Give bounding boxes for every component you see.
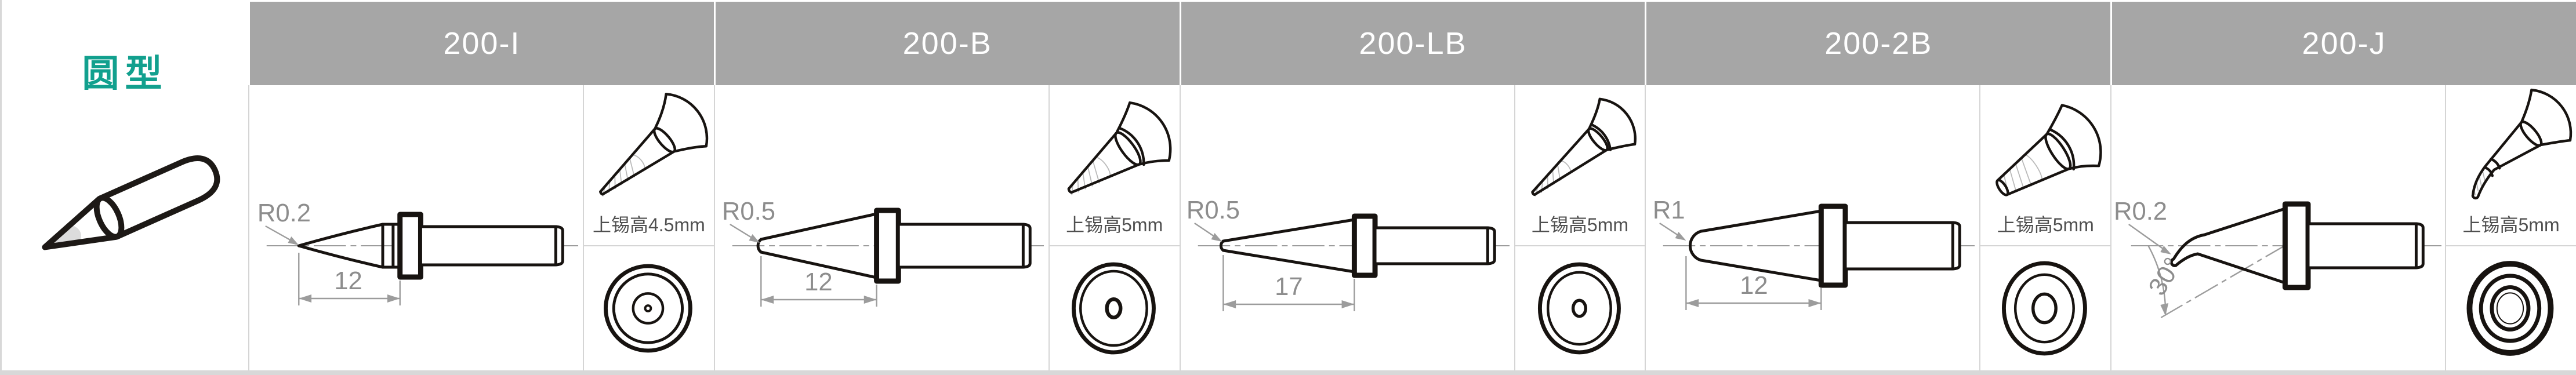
model-name: 200-I	[443, 26, 520, 61]
solder-height-cell: 上锡高5mm	[2446, 85, 2576, 246]
length-dimension-label: 12	[334, 267, 362, 295]
product-column: R0.2 30°	[2110, 85, 2576, 370]
sub-stack: 上锡高5mm	[1514, 85, 1645, 370]
tip-angled-view	[1050, 85, 1180, 209]
tin-height-label: 上锡高4.5mm	[593, 210, 705, 237]
tip-end-view	[1980, 246, 2110, 370]
tip-side-view-drawing: R0.5 17	[1181, 85, 1514, 370]
solder-height-cell: 上锡高5mm	[1980, 85, 2110, 246]
side-view-cell: R1 12	[1646, 85, 1979, 370]
product-column: R0.2 12	[248, 85, 714, 370]
tip-side-view-drawing: R1 12	[1646, 85, 1979, 370]
model-header-cell: 200-LB	[1180, 2, 1645, 85]
category-cell: 圆型	[2, 0, 248, 370]
model-name: 200-B	[903, 26, 992, 61]
end-view-cell	[584, 246, 714, 370]
model-header-cell: 200-J	[2110, 2, 2576, 85]
sub-stack: 上锡高5mm	[2445, 85, 2576, 370]
tip-catalog-table: 圆型 200-I 200-B 200-LB 200-2B 200-J	[0, 0, 2576, 375]
tip-side-view-drawing: R0.2 12	[249, 85, 583, 370]
tip-side-view-drawing: R0.2 30°	[2111, 85, 2445, 370]
header-row: 200-I 200-B 200-LB 200-2B 200-J	[248, 2, 2576, 85]
angle-dimension-label: 30°	[2143, 253, 2187, 300]
model-header-cell: 200-B	[714, 2, 1180, 85]
length-dimension-label: 12	[1740, 271, 1769, 300]
model-name: 200-2B	[1824, 26, 1932, 61]
end-view-cell	[2446, 246, 2576, 370]
tip-end-view	[1515, 246, 1645, 370]
length-dimension-label: 12	[804, 268, 833, 296]
tin-height-label: 上锡高5mm	[1066, 210, 1163, 237]
model-name: 200-LB	[1359, 26, 1467, 61]
end-view-cell	[1050, 246, 1180, 370]
solder-height-cell: 上锡高5mm	[1050, 85, 1180, 246]
tip-angled-view	[2446, 85, 2576, 209]
radius-dimension-label: R1	[1653, 196, 1685, 224]
solder-height-cell: 上锡高4.5mm	[584, 85, 714, 246]
side-view-cell: R0.5 17	[1181, 85, 1514, 370]
tip-angled-view	[1515, 85, 1645, 209]
model-header-cell: 200-2B	[1645, 2, 2110, 85]
tip-end-view	[584, 246, 714, 370]
radius-dimension-label: R0.5	[1187, 196, 1240, 224]
sub-stack: 上锡高5mm	[1048, 85, 1180, 370]
radius-dimension-label: R0.2	[257, 199, 311, 227]
end-view-cell	[1515, 246, 1645, 370]
tip-side-view-drawing: R0.5 12	[715, 85, 1048, 370]
side-view-cell: R0.5 12	[715, 85, 1048, 370]
tip-illustration	[2, 0, 250, 375]
next-row-edge	[0, 370, 2576, 375]
product-column: R1 12	[1645, 85, 2110, 370]
product-column: R0.5 17	[1180, 85, 1645, 370]
model-header-cell: 200-I	[248, 2, 714, 85]
content-row: R0.2 12	[248, 85, 2576, 370]
model-name: 200-J	[2302, 26, 2386, 61]
radius-dimension-label: R0.5	[722, 197, 775, 225]
end-view-cell	[1980, 246, 2110, 370]
sub-stack: 上锡高4.5mm	[583, 85, 714, 370]
tin-height-label: 上锡高5mm	[1532, 210, 1628, 237]
radius-dimension-label: R0.2	[2114, 197, 2167, 225]
side-view-cell: R0.2 12	[249, 85, 583, 370]
length-dimension-label: 17	[1275, 272, 1303, 301]
solder-height-cell: 上锡高5mm	[1515, 85, 1645, 246]
product-column: R0.5 12	[714, 85, 1180, 370]
tip-end-view	[2446, 246, 2576, 370]
tip-angled-view	[1980, 85, 2110, 209]
tin-height-label: 上锡高5mm	[1997, 210, 2094, 237]
tip-angled-view	[584, 85, 714, 209]
tip-end-view	[1050, 246, 1180, 370]
tin-height-label: 上锡高5mm	[2463, 210, 2560, 237]
sub-stack: 上锡高5mm	[1979, 85, 2110, 370]
side-view-cell: R0.2 30°	[2111, 85, 2445, 370]
